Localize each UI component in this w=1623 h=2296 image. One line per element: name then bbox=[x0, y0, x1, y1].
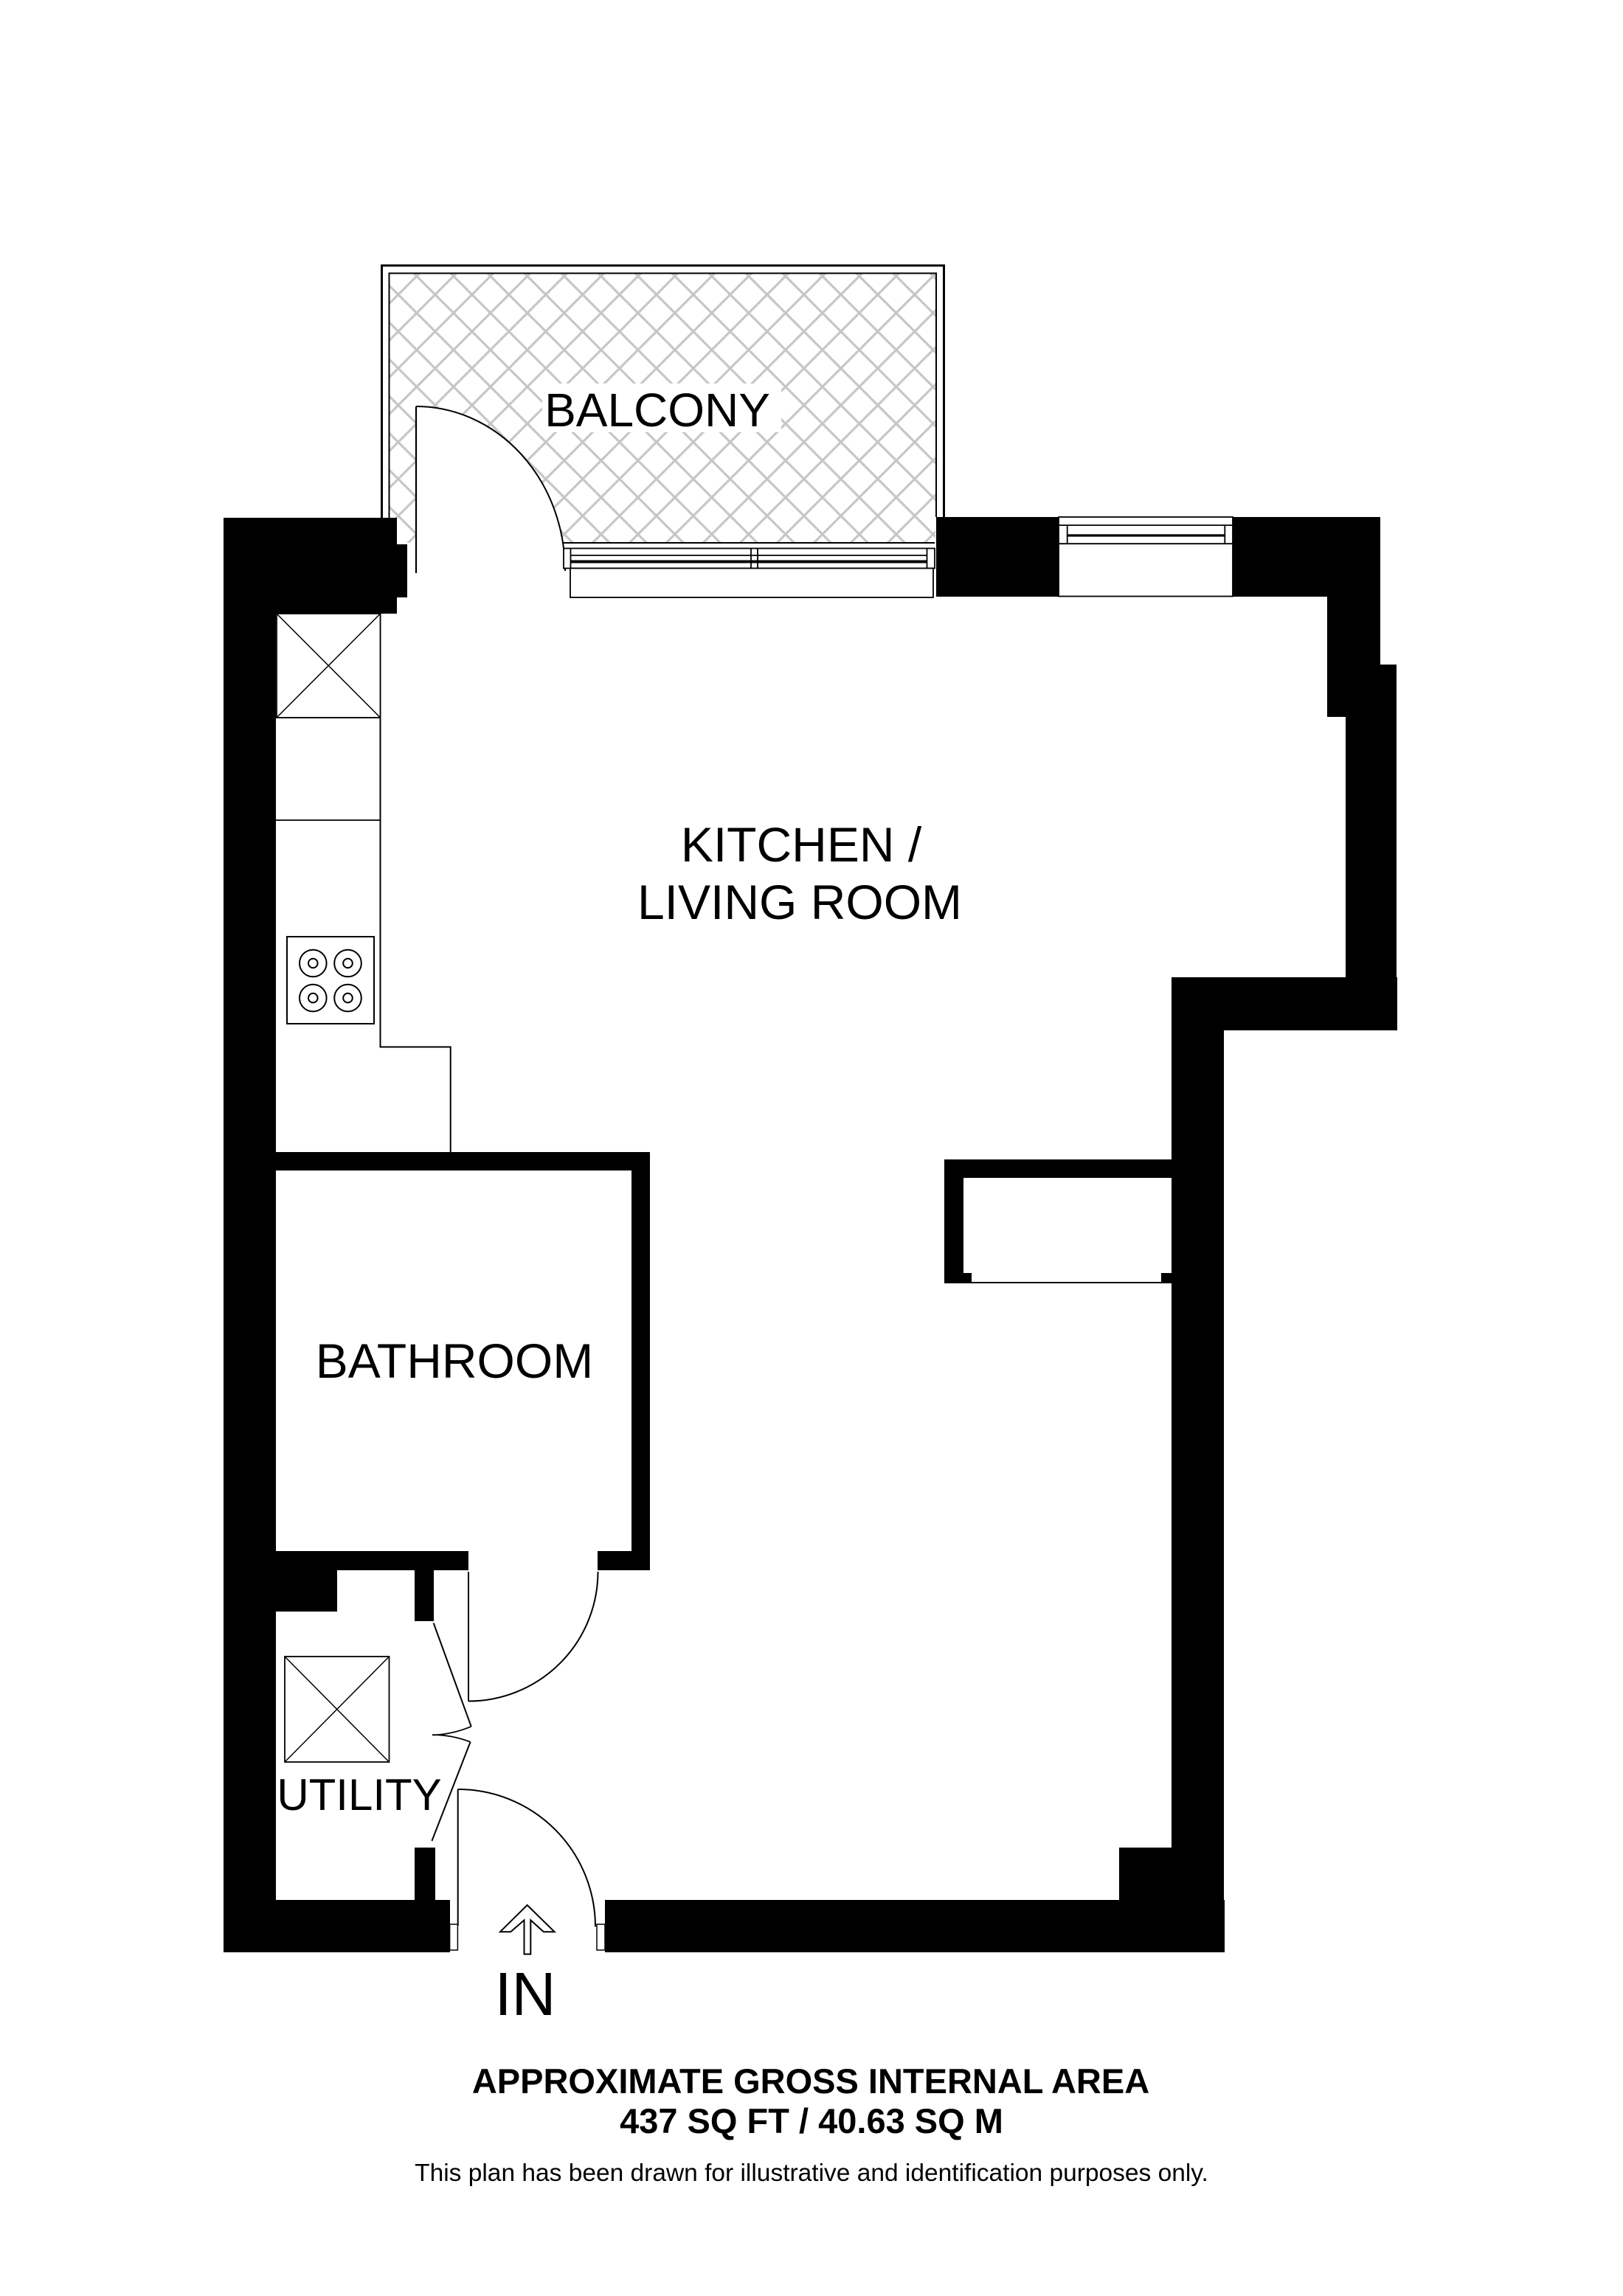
svg-text:KITCHEN /: KITCHEN / bbox=[681, 817, 922, 872]
svg-text:UTILITY: UTILITY bbox=[277, 1770, 441, 1820]
svg-text:BALCONY: BALCONY bbox=[544, 384, 770, 437]
svg-text:BATHROOM: BATHROOM bbox=[316, 1333, 593, 1388]
svg-text:This plan has been drawn for i: This plan has been drawn for illustrativ… bbox=[415, 2160, 1208, 2187]
svg-text:437 SQ FT / 40.63 SQ M: 437 SQ FT / 40.63 SQ M bbox=[620, 2101, 1003, 2140]
svg-text:APPROXIMATE GROSS INTERNAL ARE: APPROXIMATE GROSS INTERNAL AREA bbox=[472, 2061, 1149, 2101]
svg-text:LIVING ROOM: LIVING ROOM bbox=[637, 875, 962, 929]
svg-text:IN: IN bbox=[495, 1960, 556, 2028]
